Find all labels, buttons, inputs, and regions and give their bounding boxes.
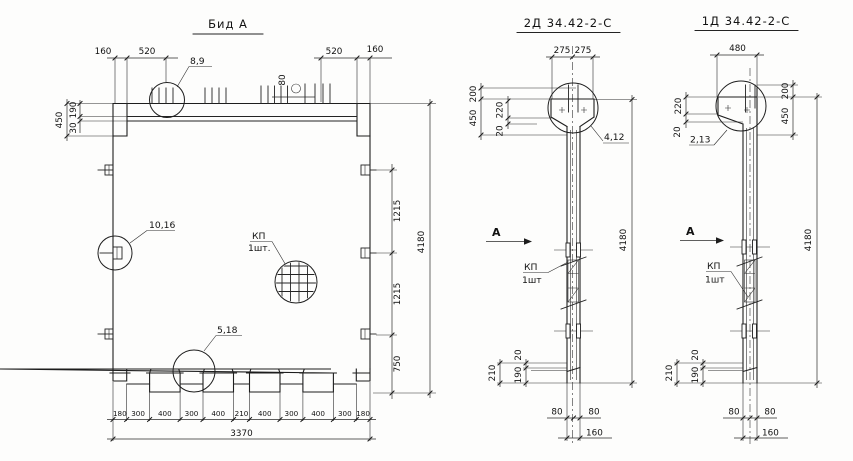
dim-450-2d: 450 [469, 109, 479, 126]
top-rebar-ticks: 80 [152, 74, 330, 103]
dim-seg: 300 [185, 409, 199, 418]
callout-2d-label: 4,12 [604, 132, 624, 143]
bolt-right-top [361, 165, 376, 175]
callout-10-16: 10,16 [98, 220, 175, 270]
dim-30: 30 [69, 122, 79, 134]
dim-seg: 300 [285, 409, 299, 418]
dim-520-right: 520 [326, 47, 343, 57]
dim-190: 190 [69, 101, 79, 118]
dim-left-2d: 200 450 220 20 [469, 83, 576, 140]
dim-275-a: 275 [554, 46, 571, 56]
section-arrow-1d: А [680, 225, 724, 244]
view-a-title: Бид А [208, 17, 248, 31]
view-a: Бид А 80 8,9 160 [0, 17, 436, 441]
dim-3370: 3370 [230, 429, 253, 439]
dim-seg: 400 [258, 409, 272, 418]
dim-160-left: 160 [95, 47, 112, 57]
dim-seg: 300 [131, 409, 145, 418]
callout-8-9: 8,9 [150, 56, 213, 118]
dim-80-a-1d: 80 [728, 408, 740, 418]
kp-label: КП [252, 231, 265, 242]
dim-190-2d: 190 [514, 366, 524, 383]
dim-275-b: 275 [575, 46, 592, 56]
weld-dot [292, 84, 301, 93]
dim-bottom-1d: 210 20 190 80 80 160 [665, 349, 788, 441]
dim-80-b-1d: 80 [764, 408, 776, 418]
detail-circle-top [150, 83, 185, 118]
dim-seg: 400 [211, 409, 225, 418]
dim-seg: 400 [311, 409, 325, 418]
dim-bottom: 180 300 400 300 400 210 400 300 400 300 … [107, 382, 376, 441]
kp-qty: 1шт. [248, 243, 271, 254]
bolt-left-bot [98, 329, 113, 339]
section-mark-1d: А [686, 225, 695, 238]
dim-210-1d: 210 [665, 364, 675, 381]
dim-seg: 180 [113, 409, 127, 418]
dim-top: 160 520 520 160 [95, 45, 392, 104]
dim-20-bot-1d: 20 [691, 349, 701, 361]
section-mark-2d: А [492, 226, 501, 239]
mesh-circle [275, 261, 317, 303]
bolt-right-mid [361, 248, 376, 258]
dim-1215-b: 1215 [393, 283, 403, 305]
dim-220-1d: 220 [674, 97, 684, 114]
kp-qty-1d: 1шт [705, 275, 725, 286]
dim-20-top-2d: 20 [496, 125, 506, 137]
engineering-drawing: Бид А 80 8,9 160 [0, 0, 853, 461]
dim-190-1d: 190 [691, 366, 701, 383]
bolt-right-bot [361, 329, 376, 339]
dim-80-a-2d: 80 [551, 408, 563, 418]
view-1d-title: 1Д 34.42-2-С [702, 14, 791, 28]
dim-left-1d: 220 20 [673, 92, 743, 138]
dim-1215-a: 1215 [393, 200, 403, 222]
dim-200-2d: 200 [469, 85, 479, 102]
dim-seg: 180 [356, 409, 370, 418]
column-1d [718, 85, 757, 383]
dim-750: 750 [393, 355, 403, 372]
dim-450: 450 [55, 111, 65, 128]
bolt-left-top [98, 165, 113, 175]
bottom-teeth [0, 369, 370, 392]
kp-label-2d: КП [524, 262, 537, 273]
dim-480-label: 480 [729, 44, 746, 54]
dim-20-bot-2d: 20 [514, 349, 524, 361]
callout-left-label: 10,16 [149, 220, 175, 231]
callout-bottom-label: 5,18 [217, 325, 238, 336]
callout-5-18: 5,18 [173, 325, 242, 392]
dim-seg: 210 [235, 409, 249, 418]
view-2d-title: 2Д 34.42-2-С [524, 16, 613, 30]
dim-4180-label-1d: 4180 [804, 228, 814, 251]
view-2d: 2Д 34.42-2-С 275 275 4,12 [469, 16, 637, 446]
section-arrow-2d: А [486, 226, 532, 245]
dim-right-1d: 200 450 [757, 80, 822, 140]
dim-450-1d: 450 [781, 107, 791, 124]
callout-2-13: 2,13 [689, 130, 727, 146]
dim-4180-label-2d: 4180 [619, 228, 629, 251]
dim-480: 480 [710, 44, 764, 97]
dim-200-1d: 200 [781, 82, 791, 99]
kp-qty-2d: 1шт [522, 275, 542, 286]
panel-outline [113, 104, 370, 370]
dim-left: 450 190 30 [55, 99, 127, 141]
callout-top-label: 8,9 [190, 56, 205, 67]
drawing-sheet: Бид А 80 8,9 160 [0, 0, 853, 461]
dim-seg: 300 [338, 409, 352, 418]
dim-bottom-2d: 210 20 190 80 80 160 [488, 349, 612, 441]
edge-bolts [98, 165, 376, 339]
dim-520-left: 520 [139, 47, 156, 57]
dim-seg: 400 [158, 409, 172, 418]
dim-160-2d: 160 [586, 429, 603, 439]
detail-circle-2d [548, 83, 598, 133]
callout-kp: КП 1шт. [248, 231, 318, 303]
dim-210-2d: 210 [488, 364, 498, 381]
dim-220-2d: 220 [496, 101, 506, 118]
dim-20-top-1d: 20 [673, 126, 683, 138]
dim-80-top: 80 [278, 74, 288, 86]
kp-label-1d: КП [707, 261, 720, 272]
bolt-left-mid [100, 247, 122, 259]
bolts-2d [554, 243, 593, 338]
callout-4-12: 4,12 [591, 126, 629, 143]
view-1d: 1Д 34.42-2-С 480 2,13 220 2 [665, 14, 822, 446]
dim-right: 1215 1215 750 4180 [370, 99, 436, 399]
dim-80-b-2d: 80 [588, 408, 600, 418]
dim-4180: 4180 [417, 230, 427, 253]
dim-160-1d: 160 [762, 429, 779, 439]
callout-1d-label: 2,13 [690, 135, 711, 146]
dim-160-right: 160 [367, 45, 384, 55]
